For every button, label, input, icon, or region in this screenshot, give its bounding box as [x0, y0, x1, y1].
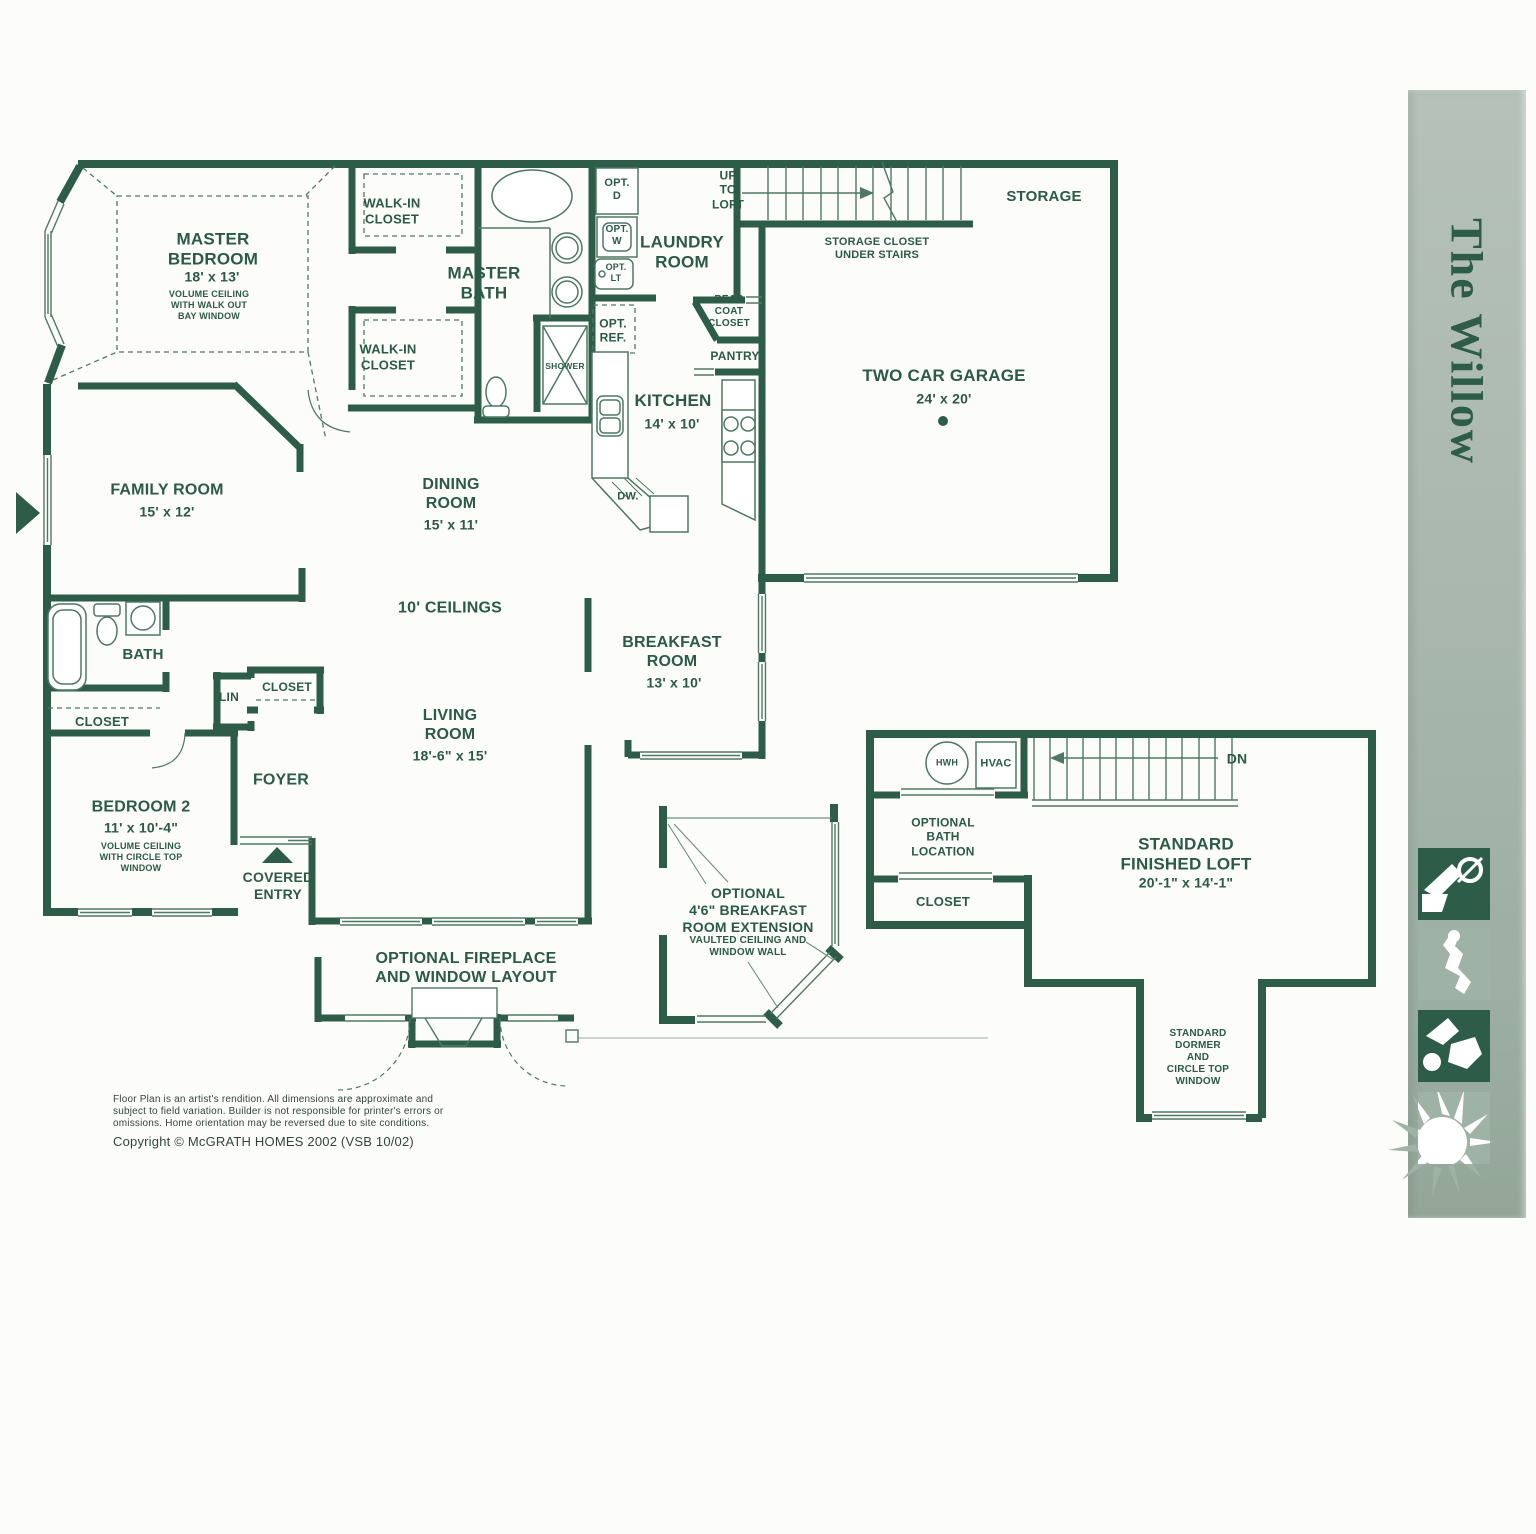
label-loft-closet: CLOSET — [916, 894, 970, 910]
label-pantry: PANTRY — [710, 349, 759, 363]
disclaimer-text: Floor Plan is an artist's rendition. All… — [113, 1094, 443, 1130]
label-hall-closet: CLOSET — [262, 680, 312, 694]
label-dormer: STANDARD DORMER AND CIRCLE TOP WINDOW — [1167, 1028, 1229, 1088]
drafting-figure-icon — [1418, 848, 1490, 920]
label-breakfast-extension-note: VAULTED CEILING AND WINDOW WALL — [690, 935, 807, 959]
label-garage: TWO CAR GARAGE — [862, 366, 1025, 386]
label-hwh: HWH — [936, 758, 958, 769]
side-entry-arrow-icon — [16, 492, 40, 534]
label-kitchen: KITCHEN — [635, 391, 712, 411]
label-master-bath: MASTER BATH — [448, 264, 521, 305]
label-bedroom2: BEDROOM 2 — [92, 797, 191, 816]
label-breakfast-extension: OPTIONAL 4'6" BREAKFAST ROOM EXTENSION — [682, 885, 813, 935]
label-kitchen-dims: 14' x 10' — [644, 416, 699, 433]
label-down: DN — [1227, 751, 1248, 768]
label-master-bedroom: MASTER BEDROOM — [168, 230, 258, 271]
label-living-room-dims: 18'-6" x 15' — [413, 748, 488, 765]
label-family-room: FAMILY ROOM — [110, 480, 223, 499]
entry-triangle-icon — [262, 847, 293, 863]
label-breakfast-room-dims: 13' x 10' — [646, 675, 701, 692]
garage-post-dot — [938, 416, 948, 426]
label-fireplace-option: OPTIONAL FIREPLACE AND WINDOW LAYOUT — [375, 949, 556, 987]
label-linen: LIN — [219, 690, 239, 704]
label-walk-in-closet-2: WALK-IN CLOSET — [360, 341, 417, 372]
label-loft: STANDARD FINISHED LOFT — [1120, 835, 1251, 876]
floor-plan-page: MASTER BEDROOM 18' x 13' VOLUME CEILING … — [0, 0, 1536, 1534]
label-foyer: FOYER — [253, 770, 309, 789]
label-up-to-loft: UP TO LOFT — [712, 168, 744, 211]
label-storage-closet: STORAGE CLOSET UNDER STAIRS — [825, 236, 930, 262]
label-optional-bath: OPTIONAL BATH LOCATION — [911, 815, 975, 858]
label-ceilings: 10' CEILINGS — [398, 598, 502, 617]
abstract-figure-icon — [1418, 1010, 1490, 1082]
label-master-bedroom-note: VOLUME CEILING WITH WALK OUT BAY WINDOW — [169, 289, 249, 321]
label-covered-entry: COVERED ENTRY — [243, 869, 314, 903]
label-shower: SHOWER — [545, 361, 584, 371]
label-opt-dryer: OPT. D — [604, 177, 629, 203]
sunburst-icon — [1370, 1080, 1530, 1220]
label-opt-ref: OPT. REF. — [599, 317, 626, 346]
label-laundry-room: LAUNDRY ROOM — [640, 233, 724, 274]
stairs-to-loft — [742, 162, 961, 222]
label-living-room: LIVING ROOM — [423, 706, 478, 744]
label-walk-in-closet-1: WALK-IN CLOSET — [364, 195, 421, 226]
label-opt-laundry-tub: OPT. LT — [606, 262, 627, 284]
dancer-figure-icon — [1418, 928, 1490, 1000]
label-hvac: HVAC — [980, 757, 1011, 770]
label-garage-dims: 24' x 20' — [916, 391, 971, 408]
label-loft-dims: 20'-1" x 14'-1" — [1139, 875, 1234, 892]
plan-title: The Willow — [1441, 218, 1494, 465]
loft-walls — [866, 730, 1376, 1118]
label-bedroom2-note: VOLUME CEILING WITH CIRCLE TOP WINDOW — [100, 841, 183, 873]
loft-stairs — [1032, 738, 1238, 806]
label-rear-coat-closet: REAR COAT CLOSET — [708, 294, 750, 330]
label-master-bedroom-dims: 18' x 13' — [184, 269, 239, 286]
label-dining-room: DINING ROOM — [422, 475, 479, 513]
label-storage: STORAGE — [1006, 188, 1081, 206]
label-bedroom2-dims: 11' x 10'-4" — [104, 820, 178, 837]
label-family-room-dims: 15' x 12' — [139, 504, 194, 521]
label-dishwasher: DW. — [617, 490, 638, 503]
label-dining-room-dims: 15' x 11' — [424, 517, 478, 534]
label-bath: BATH — [122, 646, 163, 664]
kitchen-fixtures — [592, 352, 755, 532]
label-opt-washer: OPT. W — [605, 224, 628, 248]
label-bath-closet: CLOSET — [75, 714, 129, 730]
label-breakfast-room: BREAKFAST ROOM — [622, 633, 722, 671]
copyright-text: Copyright © McGRATH HOMES 2002 (VSB 10/0… — [113, 1134, 414, 1150]
